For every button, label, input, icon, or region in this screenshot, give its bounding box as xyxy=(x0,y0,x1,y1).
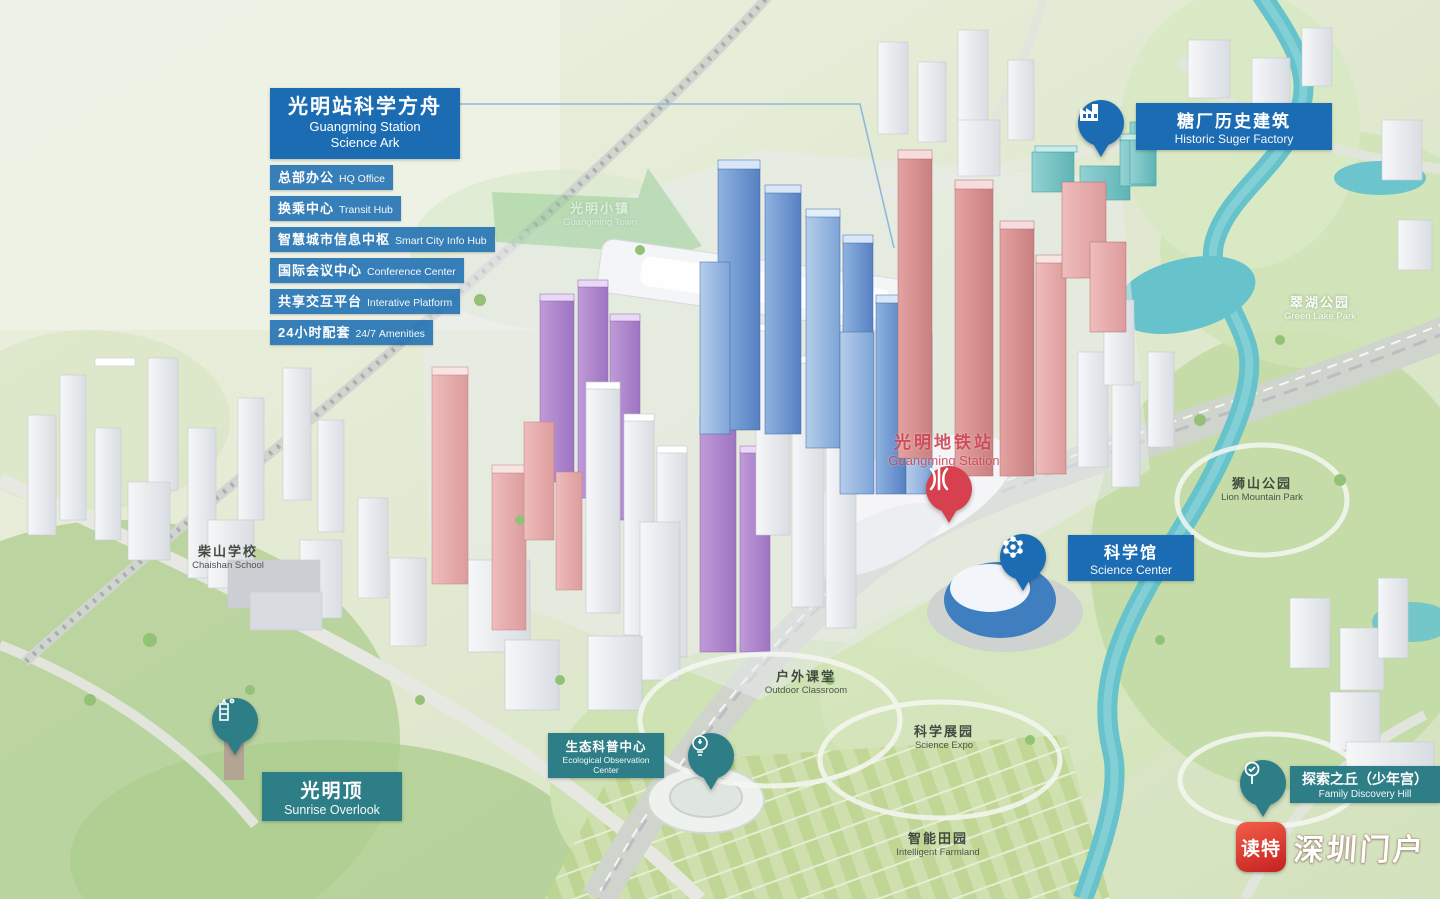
family-discovery-hill-label: 探索之丘（少年宫） Family Discovery Hill xyxy=(1290,766,1440,803)
family-discovery-hill-pin xyxy=(1240,760,1286,826)
eco-center-label: 生态科普中心 Ecological Observation Center xyxy=(548,733,664,778)
masterplan-canvas: 光明站科学方舟 Guangming Station Science Ark 总部… xyxy=(0,0,1440,899)
legend-item-smart-city-hub: 智慧城市信息中枢Smart City Info Hub xyxy=(270,227,495,252)
guangming-station-pin xyxy=(926,466,972,532)
green-lake-park-label: 翠湖公园 Green Lake Park xyxy=(1284,292,1356,322)
lightbulb-icon xyxy=(688,733,712,759)
metro-logo-icon xyxy=(926,466,952,492)
watermark-site-name: 深圳门户 xyxy=(1292,825,1427,869)
sunrise-overlook-pin xyxy=(212,698,258,764)
science-ark-title-cn: 光明站科学方舟 xyxy=(274,95,456,119)
science-ark-title-en1: Guangming Station xyxy=(274,119,456,135)
science-ark-title-en2: Science Ark xyxy=(274,135,456,151)
science-ark-panel: 光明站科学方舟 Guangming Station Science Ark 总部… xyxy=(270,88,500,345)
science-ark-title: 光明站科学方舟 Guangming Station Science Ark xyxy=(270,88,460,159)
label-overlay: 光明站科学方舟 Guangming Station Science Ark 总部… xyxy=(0,0,1440,899)
sunrise-overlook-label: 光明顶 Sunrise Overlook xyxy=(262,772,402,821)
factory-icon xyxy=(1078,100,1104,124)
lion-mountain-park-label: 狮山公园 Lion Mountain Park xyxy=(1221,473,1303,503)
legend-item-hq-office: 总部办公HQ Office xyxy=(270,165,393,190)
outdoor-classroom-label: 户外课堂 Outdoor Classroom xyxy=(765,666,847,696)
science-center-pin xyxy=(1000,534,1046,600)
legend-item-transit-hub: 换乘中心Transit Hub xyxy=(270,196,401,221)
chaishan-school-label: 柴山学校 Chaishan School xyxy=(192,541,264,571)
dutte-app-icon: 读特 xyxy=(1236,822,1286,872)
guangming-station-label: 光明地铁站 Guangming Station xyxy=(888,428,999,468)
molecule-icon xyxy=(1000,534,1026,560)
tower-icon xyxy=(212,698,236,724)
legend-item-conference-center: 国际会议中心Conference Center xyxy=(270,258,464,283)
legend-item-interactive-platform: 共享交互平台Interative Platform xyxy=(270,289,460,314)
sugar-factory-label: 糖厂历史建筑 Historic Suger Factory xyxy=(1136,103,1332,150)
watermark: 读特 深圳门户 xyxy=(1236,822,1426,872)
sugar-factory-pin xyxy=(1078,100,1124,166)
legend-item-amenities: 24小时配套24/7 Amenities xyxy=(270,320,433,345)
science-center-label: 科学馆 Science Center xyxy=(1068,535,1194,581)
science-expo-label: 科学展园 Science Expo xyxy=(914,721,974,751)
intelligent-farmland-label: 智能田园 Intelligent Farmland xyxy=(896,828,979,858)
guangming-town-label: 光明小镇 Guangming Town xyxy=(563,198,637,228)
eco-center-pin xyxy=(688,733,734,799)
magnifier-icon xyxy=(1240,760,1264,786)
